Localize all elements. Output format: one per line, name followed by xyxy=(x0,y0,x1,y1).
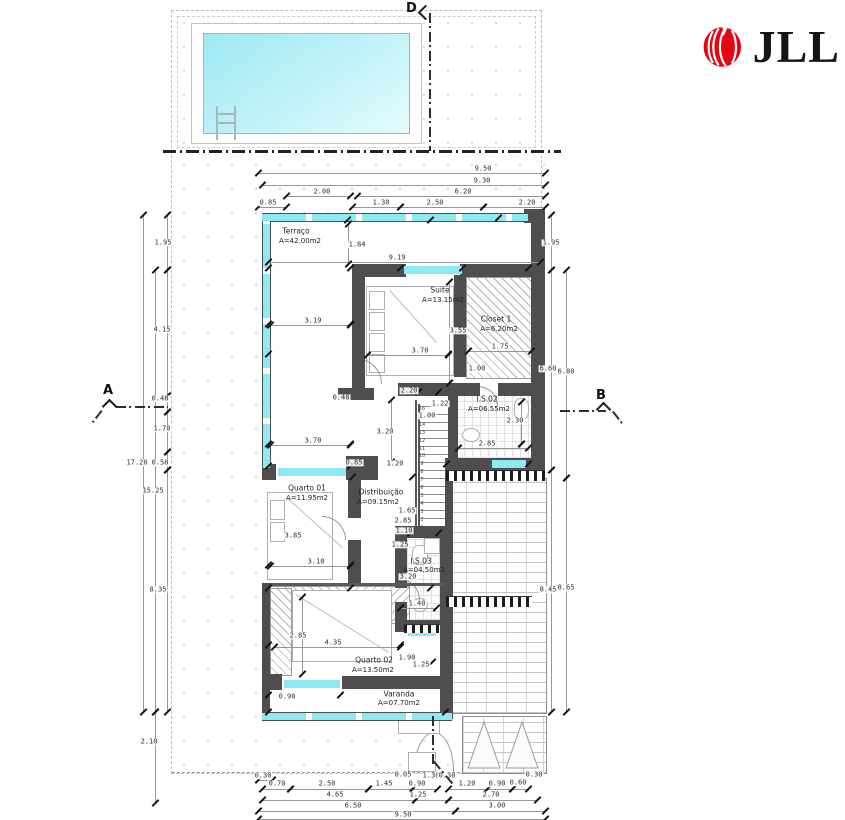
dim-label: 4.35 xyxy=(324,639,343,646)
dim-label: 1.00 xyxy=(418,412,437,419)
section-line-b-tail xyxy=(612,411,623,425)
dim-line xyxy=(400,207,483,208)
pool-ladder-rung xyxy=(216,113,236,115)
dim-tick xyxy=(139,708,147,716)
section-arrow-b xyxy=(596,402,612,418)
dim-line xyxy=(286,196,350,197)
stair-number: 6 xyxy=(420,485,423,491)
dim-label: 3.20 xyxy=(376,428,395,435)
dim-label: 9.30 xyxy=(473,177,492,184)
section-arrow-a xyxy=(102,399,118,415)
dim-line xyxy=(458,448,528,449)
room-name: Closet 1 xyxy=(481,315,512,324)
dim-label: 3.55 xyxy=(449,327,468,334)
dim-label: 4.15 xyxy=(153,326,172,333)
dim-label: 6.80 xyxy=(557,368,576,375)
stair-number: 4 xyxy=(420,501,423,507)
patio-threshold xyxy=(446,470,545,481)
section-line-d-bottom xyxy=(432,716,434,764)
dim-label: 2.70 xyxy=(482,791,501,798)
room-area: A=6.20m2 xyxy=(480,325,518,333)
stair-number: 3 xyxy=(420,509,423,515)
dim-line xyxy=(400,608,436,609)
dim-line xyxy=(415,800,448,801)
dim-label: 2.85 xyxy=(394,517,413,524)
pillow xyxy=(369,291,385,310)
room-name: I.S.02 xyxy=(476,395,497,404)
dim-label: 1.20 xyxy=(458,780,477,787)
dim-label: 6.60 xyxy=(539,365,558,372)
dim-label: 9.19 xyxy=(388,254,407,261)
dim-tick xyxy=(151,799,159,807)
dim-tick xyxy=(433,785,441,793)
dim-label: 2.20 xyxy=(400,387,419,394)
dim-line xyxy=(262,185,545,186)
dim-line xyxy=(274,647,400,648)
dim-label: 17.20 xyxy=(125,459,148,466)
dim-label: 3.70 xyxy=(411,347,430,354)
wall xyxy=(348,540,361,583)
stair-number: 10 xyxy=(419,453,425,459)
dim-label: 1.75 xyxy=(491,343,510,350)
dim-label: 2.00 xyxy=(313,188,332,195)
dim-label: 8.35 xyxy=(149,586,168,593)
dim-line xyxy=(566,478,567,712)
stair-number: 11 xyxy=(419,446,425,452)
dim-label: 6.50 xyxy=(344,802,363,809)
dim-label: 0.05 xyxy=(394,771,413,778)
stair-wall xyxy=(415,400,417,535)
dim-label: 8.45 xyxy=(539,586,558,593)
jll-logo: JLL xyxy=(700,16,840,78)
dim-label: 2.50 xyxy=(318,780,337,787)
room-area: A=11.95m2 xyxy=(286,494,328,502)
wall xyxy=(262,674,282,690)
dim-label: 0.58 xyxy=(151,459,170,466)
patio-threshold xyxy=(446,596,532,607)
dim-label: 1.25 xyxy=(409,791,428,798)
dim-label: 0.90 xyxy=(278,693,297,700)
dim-label: 15.25 xyxy=(141,487,164,494)
section-marker-b: B xyxy=(596,388,606,403)
dim-tick xyxy=(562,708,570,716)
dim-label: 9.50 xyxy=(474,165,493,172)
dim-tick xyxy=(547,708,555,716)
dim-label: 0.85 xyxy=(345,459,364,466)
varanda-railing xyxy=(262,712,452,721)
stair-number: 12 xyxy=(419,438,425,444)
room-name: Suite xyxy=(430,286,449,295)
dim-line xyxy=(368,789,412,790)
dim-label: 0.70 xyxy=(268,780,287,787)
dim-label: 0.48 xyxy=(332,394,351,401)
dim-label: 3.00 xyxy=(488,802,507,809)
dim-label: 2.50 xyxy=(426,199,445,206)
dim-label: 1.84 xyxy=(348,241,367,248)
dim-line xyxy=(448,789,487,790)
room-name: I.S.03 xyxy=(410,557,431,566)
dim-label: 1.30 xyxy=(372,199,391,206)
dim-label: 2.85 xyxy=(478,440,497,447)
dim-line xyxy=(352,207,400,208)
stair-number: 9 xyxy=(420,461,423,467)
dim-label: 3.70 xyxy=(304,437,323,444)
dim-label: 1.40 xyxy=(408,600,427,607)
gate-roofs xyxy=(462,716,545,772)
stair-number: 13 xyxy=(419,430,425,436)
dim-line xyxy=(262,789,290,790)
room-area: A=06.55m2 xyxy=(468,405,510,413)
dim-label: 1.22 xyxy=(431,400,450,407)
dim-line xyxy=(270,445,350,446)
dim-line xyxy=(258,207,286,208)
section-marker-a: A xyxy=(103,383,113,398)
dim-tick xyxy=(541,815,549,820)
dim-label: 0.60 xyxy=(509,779,528,786)
room-name: Distribuição xyxy=(359,488,404,497)
room-area: A=42.00m2 xyxy=(279,237,321,245)
pillow xyxy=(270,500,285,520)
is03-door-threshold xyxy=(404,624,440,633)
stair-number: 2 xyxy=(420,517,423,523)
room-name: Quarto 02 xyxy=(355,656,393,665)
is02-window xyxy=(492,460,526,468)
dim-line xyxy=(270,566,350,567)
dim-label: 0.48 xyxy=(151,395,170,402)
section-line-d xyxy=(429,13,431,151)
dim-label: 0.30 xyxy=(525,771,544,778)
dim-label: 1.95 xyxy=(154,239,173,246)
stair-number: 14 xyxy=(419,422,425,428)
dim-label: 0.90 xyxy=(488,780,507,787)
section-line-a-tail xyxy=(90,410,103,425)
jll-logo-text: JLL xyxy=(753,24,840,70)
dim-line xyxy=(270,325,350,326)
dim-label: 3.85 xyxy=(284,532,303,539)
is03-cabinet xyxy=(424,538,440,554)
dim-label: 3.19 xyxy=(304,317,323,324)
dim-tick xyxy=(541,807,549,815)
floor-plan-canvas: JLL xyxy=(0,0,845,820)
pillow xyxy=(369,333,385,352)
wall xyxy=(352,264,365,392)
dim-label: 1.45 xyxy=(375,780,394,787)
dim-label: 8.65 xyxy=(557,584,576,591)
wall xyxy=(498,383,532,396)
dim-label: 3.10 xyxy=(307,558,326,565)
dim-line xyxy=(468,351,531,352)
dim-line xyxy=(367,355,448,356)
dim-line xyxy=(483,207,545,208)
dim-label: 2.10 xyxy=(140,738,159,745)
quarto02-window xyxy=(284,680,340,688)
dim-line xyxy=(262,800,415,801)
dim-label: 2.20 xyxy=(518,199,537,206)
dim-label: 1.25 xyxy=(412,661,431,668)
terrace-railing-top xyxy=(262,213,528,222)
property-line xyxy=(163,150,561,153)
dim-label: 1.95 xyxy=(542,239,561,246)
dim-line xyxy=(155,712,156,803)
dim-label: 0.85 xyxy=(259,199,278,206)
room-name: Terraço xyxy=(282,227,309,236)
section-line-a xyxy=(116,406,168,408)
stair-number: 5 xyxy=(420,493,423,499)
dim-label: 2.85 xyxy=(289,632,308,639)
dim-line xyxy=(258,811,455,812)
pool-ladder-rung xyxy=(216,122,236,124)
dim-label: 0.90 xyxy=(408,780,427,787)
wall xyxy=(342,676,442,689)
stair-number: 8 xyxy=(420,469,423,475)
dim-line xyxy=(455,811,545,812)
dim-line xyxy=(268,262,540,263)
dim-label: 4.65 xyxy=(326,791,345,798)
dim-label: 1.10 xyxy=(395,527,414,534)
room-area: A=07.70m2 xyxy=(378,699,420,707)
suite-window xyxy=(404,266,462,274)
dim-label: 2.30 xyxy=(506,417,525,424)
dim-tick xyxy=(163,708,171,716)
wall xyxy=(460,264,532,277)
dim-label: 6.20 xyxy=(454,188,473,195)
dim-label: 1.65 xyxy=(398,507,417,514)
dim-line xyxy=(258,173,545,174)
dim-label: 1.20 xyxy=(386,460,405,467)
dim-label: 1.70 xyxy=(153,425,172,432)
dim-line xyxy=(357,196,545,197)
quarto01-window xyxy=(278,468,346,476)
section-marker-d: D xyxy=(406,1,417,16)
stair-number: 7 xyxy=(420,477,423,483)
room-area: A=13.50m2 xyxy=(352,666,394,674)
room-area: A=13.15m2 xyxy=(422,296,464,304)
dim-label: 3.20 xyxy=(399,573,418,580)
room-name: Quarto 01 xyxy=(288,484,326,493)
dim-label: 9.50 xyxy=(394,811,413,818)
dim-tick xyxy=(533,796,541,804)
room-area: A=09.15m2 xyxy=(357,498,399,506)
room-name: Varanda xyxy=(384,690,415,699)
dim-label: 1.25 xyxy=(391,541,410,548)
pillow xyxy=(369,312,385,331)
dim-label: 1.00 xyxy=(468,365,487,372)
jll-logo-mark xyxy=(700,18,745,76)
